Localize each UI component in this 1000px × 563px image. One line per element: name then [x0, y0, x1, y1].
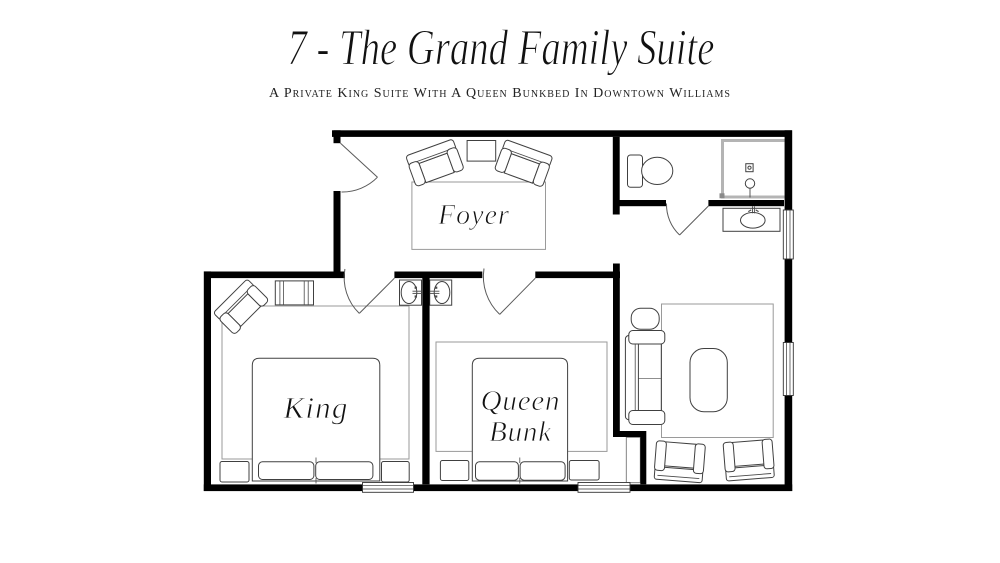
svg-text:Foyer: Foyer: [437, 200, 510, 231]
svg-text:A Private King Suite With A Qu: A Private King Suite With A Queen Bunkbe…: [269, 86, 731, 101]
svg-text:Queen: Queen: [481, 385, 561, 417]
svg-text:King: King: [282, 390, 348, 425]
svg-text:Bunk: Bunk: [489, 416, 552, 448]
svg-text:7 - The Grand Family Suite: 7 - The Grand Family Suite: [288, 20, 715, 76]
